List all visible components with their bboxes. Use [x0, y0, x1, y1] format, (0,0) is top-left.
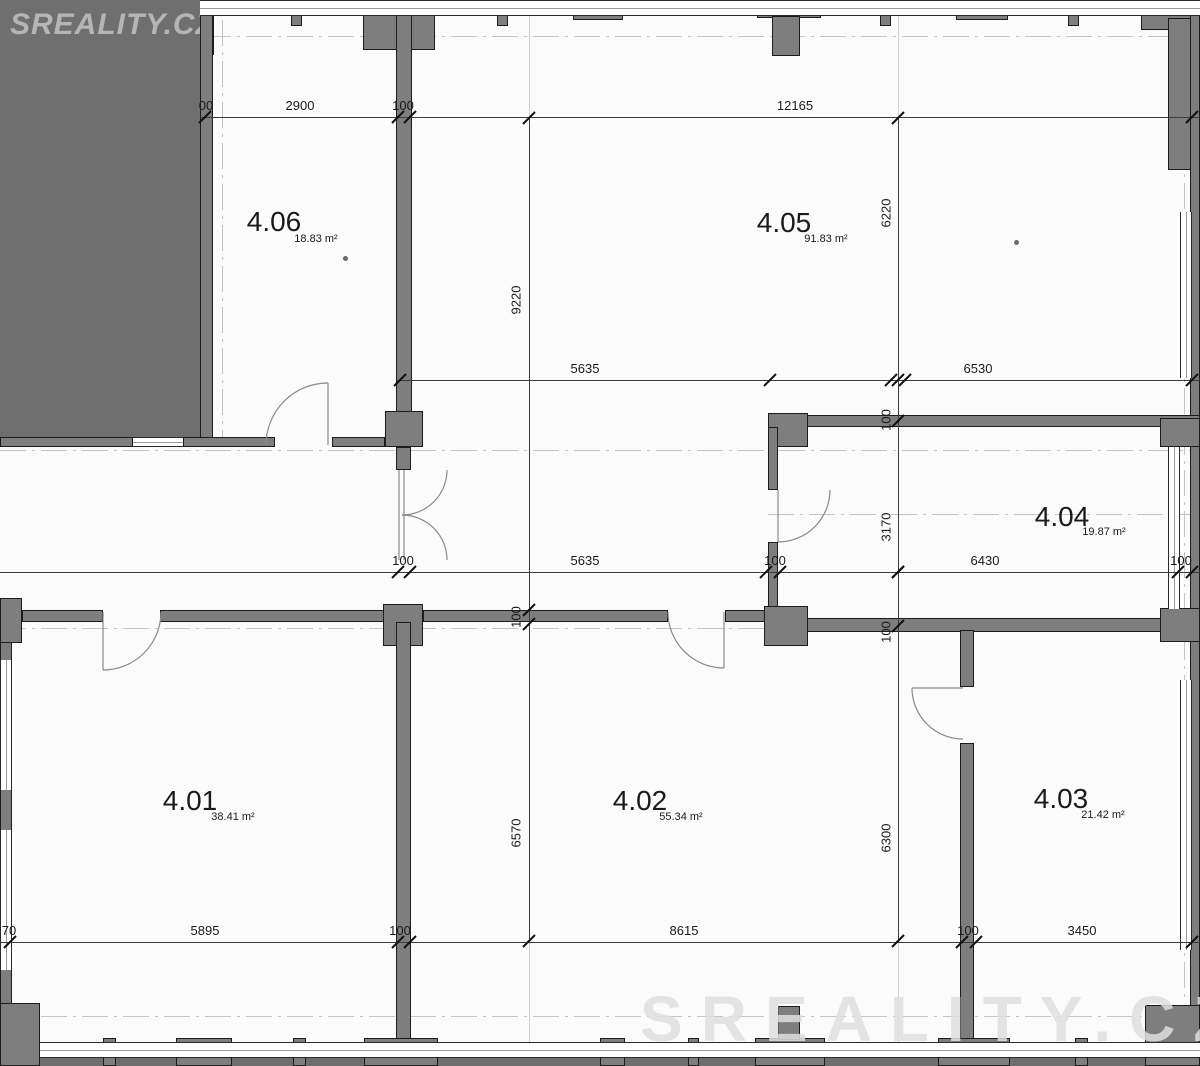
door-arc-403	[912, 688, 963, 739]
door-arc-404	[778, 490, 830, 542]
room-area-405: 91.83 m²	[804, 233, 847, 245]
dim-label: 100	[392, 553, 414, 568]
dim-label: 6300	[879, 824, 894, 853]
door-arc-double-upper	[402, 470, 447, 515]
dimension-line	[0, 572, 1200, 573]
room-label-405: 4.05	[757, 207, 812, 239]
room-label-406: 4.06	[247, 206, 302, 238]
wall-corridor-top	[183, 437, 275, 447]
dim-label: 9220	[509, 286, 524, 315]
dim-label: 6530	[964, 361, 993, 376]
wall-404-bottom	[798, 618, 1200, 632]
wall-corridor-bottom	[160, 610, 393, 622]
window	[0, 830, 12, 970]
room-label-404: 4.04	[1035, 501, 1090, 533]
room-label-401: 4.01	[163, 785, 218, 817]
axis-line	[0, 450, 1200, 451]
sreality-logo: SREALITY.CZ	[10, 8, 215, 42]
wall-0102	[396, 622, 411, 1040]
dim-label: 100	[509, 606, 524, 628]
wall-corridor-bottom	[22, 610, 103, 622]
extension-line	[898, 16, 899, 117]
dim-label: 100	[1170, 553, 1192, 568]
axis-line	[768, 514, 1200, 515]
wall-0203	[960, 630, 974, 687]
dimension-line	[0, 942, 1200, 943]
wall-404-top	[790, 415, 1200, 427]
dim-label: 00	[199, 98, 213, 113]
wall-406-left	[200, 0, 213, 447]
window	[1180, 212, 1192, 378]
pillar-cross	[385, 411, 423, 447]
dim-label: 5895	[191, 923, 220, 938]
wall-corridor-bottom	[725, 610, 766, 622]
pillar-junction	[764, 606, 808, 646]
axis-line	[205, 36, 1200, 37]
dim-label: 100	[957, 923, 979, 938]
pillar	[772, 16, 800, 56]
pillar	[1160, 418, 1200, 447]
dim-label: 3170	[879, 513, 894, 542]
window	[1168, 447, 1180, 609]
dim-label: 5635	[571, 361, 600, 376]
dimension-line	[200, 117, 1200, 118]
wall-corridor-top	[332, 437, 385, 447]
wall-stub	[396, 447, 411, 470]
reference-dot	[1014, 240, 1019, 245]
extension-line	[529, 943, 530, 1042]
room-area-406: 18.83 m²	[294, 233, 337, 245]
reference-dot	[343, 256, 348, 261]
wall-corridor-top	[0, 437, 133, 447]
axis-line	[222, 20, 223, 437]
dim-label: 3450	[1068, 923, 1097, 938]
door-leaf-double	[399, 470, 404, 560]
dim-label: 6570	[509, 819, 524, 848]
dim-label: 100	[389, 923, 411, 938]
watermark-text: SREALITY.CZ	[640, 982, 1200, 1056]
dim-label: 6430	[971, 553, 1000, 568]
window	[1180, 680, 1192, 950]
room-area-401: 38.41 m²	[211, 811, 254, 823]
dim-label: 6220	[879, 199, 894, 228]
pillar-corner	[0, 1003, 40, 1066]
dim-label: 100	[392, 98, 414, 113]
dim-label: 100	[764, 553, 786, 568]
dim-label: 100	[879, 621, 894, 643]
room-area-402: 55.34 m²	[659, 811, 702, 823]
extension-line	[529, 16, 530, 117]
window	[0, 660, 12, 790]
dimension-line	[529, 117, 530, 942]
pillar	[0, 598, 22, 643]
dim-label: 5635	[571, 553, 600, 568]
door-arc-401	[103, 612, 161, 670]
door-arc-406	[266, 383, 328, 445]
wall-corridor-bottom	[423, 610, 668, 622]
dim-label: 12165	[777, 98, 813, 113]
dim-label: 70	[2, 923, 16, 938]
floorplan-image: SREALITY.CZ	[0, 0, 1200, 1066]
dim-label: 8615	[670, 923, 699, 938]
dimension-line	[898, 117, 899, 942]
window-band-top	[200, 0, 1200, 16]
door-arc-402	[668, 612, 724, 668]
wall-404-left	[768, 427, 778, 490]
window	[133, 437, 183, 447]
room-area-403: 21.42 m²	[1081, 809, 1124, 821]
dim-label: 100	[879, 409, 894, 431]
dimension-line	[396, 380, 1200, 381]
dim-label: 2900	[286, 98, 315, 113]
pillar	[1160, 608, 1200, 642]
outside-area	[0, 0, 201, 437]
room-label-403: 4.03	[1034, 783, 1089, 815]
room-area-404: 19.87 m²	[1082, 526, 1125, 538]
